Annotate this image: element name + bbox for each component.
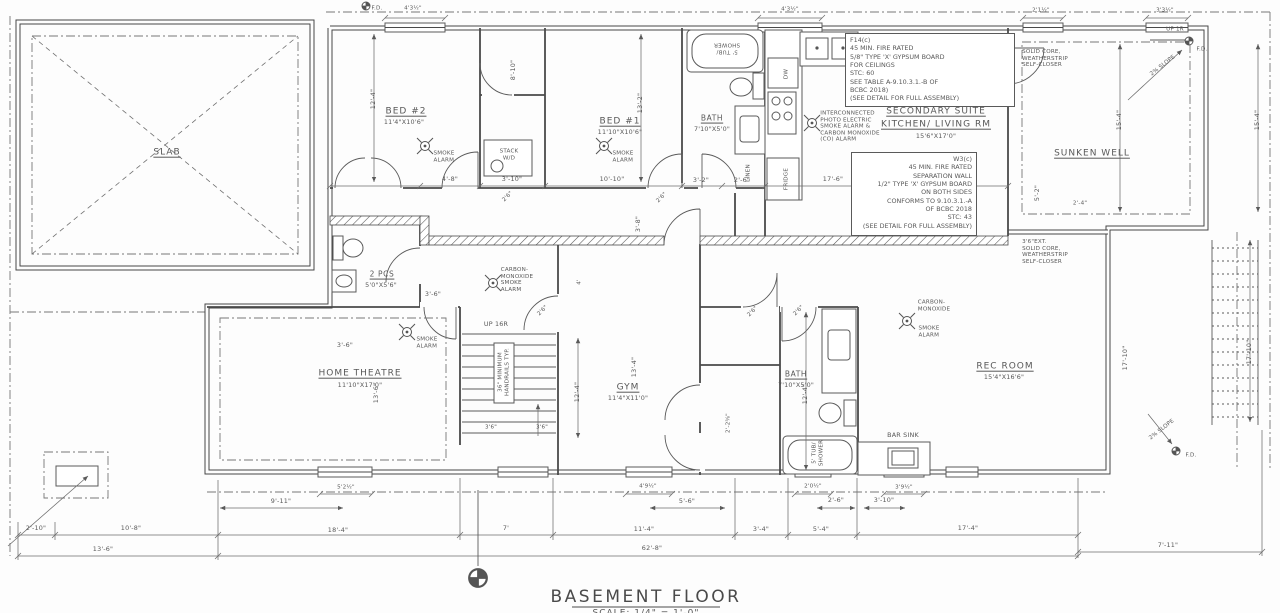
dim-mid-1: 4'-8" bbox=[442, 176, 458, 184]
alarm-label-interconnected: INTERCONNECTEDPHOTO ELECTRICSMOKE ALARM … bbox=[820, 111, 880, 144]
alarm-label-rec-co: CARBON-MONOXIDE bbox=[918, 299, 950, 312]
exterior-staircase bbox=[1212, 240, 1258, 425]
dim-mid-5: 2'-6" bbox=[734, 177, 750, 185]
dim-b6: 3'-4" bbox=[753, 526, 769, 534]
dim-top-3: 2'1½" bbox=[1032, 8, 1050, 15]
fixture-label-dw: DW bbox=[784, 69, 791, 79]
room-size-2pcs: 5'0"X5'6" bbox=[365, 282, 397, 290]
dim-w1: 5'2½" bbox=[337, 485, 355, 492]
basement-floor-plan: SLAB BED #2 11'4"X10'6" BED #1 11'10"X10… bbox=[0, 0, 1280, 613]
drawing-scale: SCALE: 1/4" = 1'-0" bbox=[593, 609, 700, 613]
dim-mid-6: 17'-6" bbox=[823, 176, 843, 184]
drawing-title: BASEMENT FLOOR bbox=[551, 587, 742, 607]
dim-v11: 12'-4" bbox=[802, 384, 810, 404]
dim-h3: 3'6" bbox=[485, 425, 497, 432]
dim-w4: 3'9½" bbox=[895, 485, 913, 492]
room-label-2pcs: 2 PCS bbox=[370, 271, 395, 280]
room-label-suite-line2: KITCHEN/ LIVING RM bbox=[881, 120, 991, 131]
dim-a3: 2'-6" bbox=[828, 497, 844, 505]
home-theatre-outline bbox=[220, 318, 446, 460]
dim-door-6: 2'-2⅝" bbox=[726, 413, 733, 433]
note-up1r: UP 1R bbox=[1166, 27, 1184, 34]
fixture-label-tub-upper: 5' TUB/SHOWER bbox=[714, 41, 740, 54]
note-handrail: 36" MINIMUMHANDRAILS TYP. bbox=[497, 348, 510, 396]
note-w3: W3(c)45 MIN. FIRE RATEDSEPARATION WALL1/… bbox=[851, 152, 977, 236]
dim-b9: 7'-11" bbox=[1158, 542, 1178, 550]
dim-b1: 2'-10" bbox=[26, 525, 46, 533]
room-size-bed1: 11'10"X10'6" bbox=[598, 129, 643, 137]
window-well bbox=[8, 452, 108, 546]
dim-mid-2: 3'-10" bbox=[502, 176, 522, 184]
dim-v4: 3'-8" bbox=[635, 216, 643, 232]
dim-h4: 3'6" bbox=[536, 425, 548, 432]
dim-top-1: 4'3½" bbox=[404, 6, 422, 13]
suite-line1-text: SECONDARY SUITE bbox=[886, 107, 986, 117]
dim-w3: 2'0½" bbox=[804, 484, 822, 491]
room-size-rec-room: 15'4"X16'6" bbox=[984, 374, 1024, 382]
dim-v8: 17'-10" bbox=[1246, 340, 1254, 365]
room-label-bed1: BED #1 bbox=[600, 117, 641, 128]
room-size-suite: 15'6"X17'0" bbox=[916, 133, 956, 141]
dim-top-2: 4'3½" bbox=[781, 7, 799, 14]
note-fd-topleft: F.D. bbox=[372, 6, 383, 13]
garage-slab bbox=[18, 22, 312, 268]
dim-v2: 8'-10" bbox=[510, 60, 518, 80]
dim-b8: 17'-4" bbox=[958, 525, 978, 533]
dim-a2: 5'-6" bbox=[679, 498, 695, 506]
note-door-mid: 3'6"EXT.SOLID CORE,WEATHERSTRIPSELF-CLOS… bbox=[1022, 239, 1068, 265]
dim-b3: 18'-4" bbox=[328, 527, 348, 535]
dim-h1: 3'-6" bbox=[425, 291, 441, 299]
note-fd-top: F.D. bbox=[1197, 47, 1208, 54]
room-label-rec-room: REC ROOM bbox=[976, 362, 1033, 373]
room-size-gym: 11'4"X11'0" bbox=[608, 395, 648, 403]
room-label-home-theatre: HOME THEATRE bbox=[318, 369, 401, 380]
note-up16r: UP 16R bbox=[484, 321, 508, 329]
dim-c1: 13'-6" bbox=[93, 546, 113, 554]
dim-v6: 15'-4" bbox=[1254, 110, 1262, 130]
alarm-label-bed2: SMOKEALARM bbox=[434, 150, 455, 163]
note-f14: F14(c)45 MIN. FIRE RATED5/8" TYPE 'X' GY… bbox=[845, 33, 1015, 107]
dim-v15: 4' bbox=[577, 279, 584, 285]
suite-line2-text: KITCHEN/ LIVING RM bbox=[881, 120, 991, 130]
alarm-label-bed1: SMOKEALARM bbox=[613, 150, 634, 163]
dim-v7: 17'-10" bbox=[1122, 346, 1130, 371]
dim-v12: 13'-6" bbox=[373, 383, 381, 403]
dim-c2: 62'-8" bbox=[642, 545, 662, 553]
room-label-bath-upper: BATH bbox=[701, 115, 723, 124]
dim-v1: 12'-4" bbox=[370, 89, 378, 109]
dim-b7: 5'-4" bbox=[813, 526, 829, 534]
note-fd-bottom: F.D. bbox=[1186, 453, 1197, 460]
alarm-label-home-theatre: SMOKEALARM bbox=[417, 336, 438, 349]
dim-mid-4: 3'-2" bbox=[693, 177, 709, 185]
section-marker bbox=[469, 490, 487, 587]
dim-w2: 4'9½" bbox=[639, 484, 657, 491]
room-label-gym: GYM bbox=[617, 383, 640, 394]
note-door-top: SOLID CORE,WEATHERSTRIPSELF-CLOSER bbox=[1022, 49, 1068, 69]
fixture-label-tub-lower: 5' TUB/SHOWER bbox=[811, 440, 824, 466]
dim-a4: 3'-10" bbox=[874, 497, 894, 505]
dim-v10: 13'-4" bbox=[631, 357, 639, 377]
dim-top-4: 3'3½" bbox=[1156, 8, 1174, 15]
dim-v13: 5'-2" bbox=[1034, 185, 1042, 201]
dim-v3: 13'-2" bbox=[637, 93, 645, 113]
dim-v14: 2'-4" bbox=[1073, 201, 1087, 208]
alarm-label-hall: CARBON-MONOXIDESMOKEALARM bbox=[501, 267, 533, 293]
dim-b4: 7' bbox=[503, 525, 509, 533]
dim-b2: 10'-8" bbox=[121, 525, 141, 533]
fixture-label-bar-sink: BAR SINK bbox=[887, 432, 919, 440]
fixture-label-fridge: FRIDGE bbox=[784, 168, 791, 190]
dim-v5: 15'-4" bbox=[1116, 110, 1124, 130]
room-label-suite-line1: SECONDARY SUITE bbox=[886, 107, 986, 118]
room-label-bed2: BED #2 bbox=[386, 107, 427, 118]
dim-v9: 12'-4" bbox=[574, 382, 582, 402]
room-size-bath-upper: 7'10"X5'0" bbox=[694, 126, 730, 134]
room-size-bed2: 11'4"X10'6" bbox=[384, 119, 424, 127]
dim-b5: 11'-4" bbox=[634, 526, 654, 534]
room-label-bath-lower: BATH bbox=[785, 371, 807, 380]
room-label-slab: SLAB bbox=[153, 148, 180, 159]
room-label-sunken-well: SUNKEN WELL bbox=[1054, 149, 1130, 160]
dim-a1: 9'-11" bbox=[271, 498, 291, 506]
fixture-label-stack-wd: STACKW/D bbox=[500, 148, 519, 161]
alarm-label-rec-smoke: SMOKEALARM bbox=[919, 325, 940, 338]
dim-mid-3: 10'-10" bbox=[600, 176, 625, 184]
dim-h2: 3'-6" bbox=[337, 342, 353, 350]
